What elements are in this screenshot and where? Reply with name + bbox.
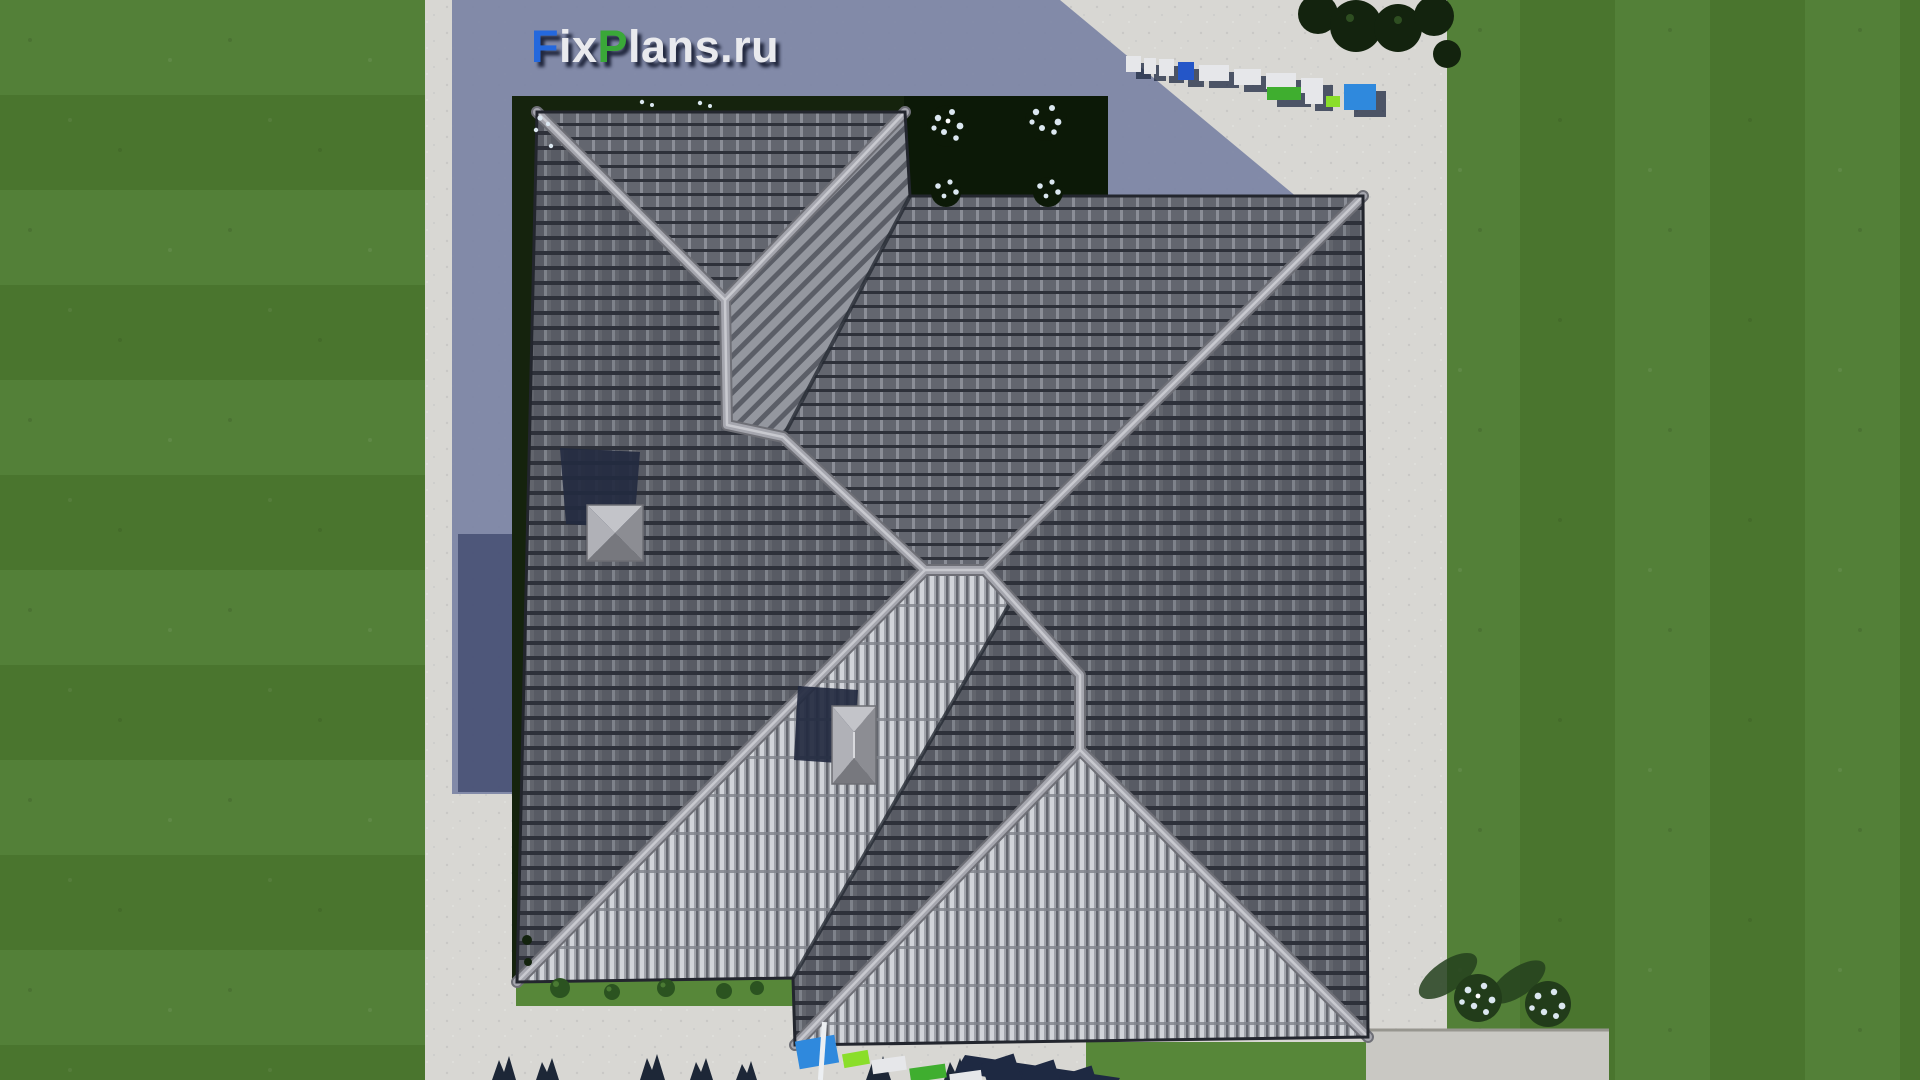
logo-segment: lans [628, 24, 720, 69]
roof [517, 112, 1368, 1045]
patio-slab [1363, 1030, 1609, 1080]
logo-segment: .ru [720, 24, 779, 69]
flower-bush [1033, 177, 1063, 207]
site-plan-scene [0, 0, 1920, 1080]
flower-bush [931, 177, 961, 207]
aerial-site-render: FixPlans.ru [0, 0, 1920, 1080]
flower-bush [1454, 974, 1502, 1022]
flower-bush [927, 105, 969, 147]
fixplans-logo: FixPlans.ru [531, 24, 779, 69]
logo-segment: P [598, 24, 629, 69]
logo-segment: ix [559, 24, 598, 69]
logo-segment: F [531, 24, 559, 69]
flower-bush [1025, 99, 1067, 141]
flower-bush [1525, 981, 1571, 1027]
